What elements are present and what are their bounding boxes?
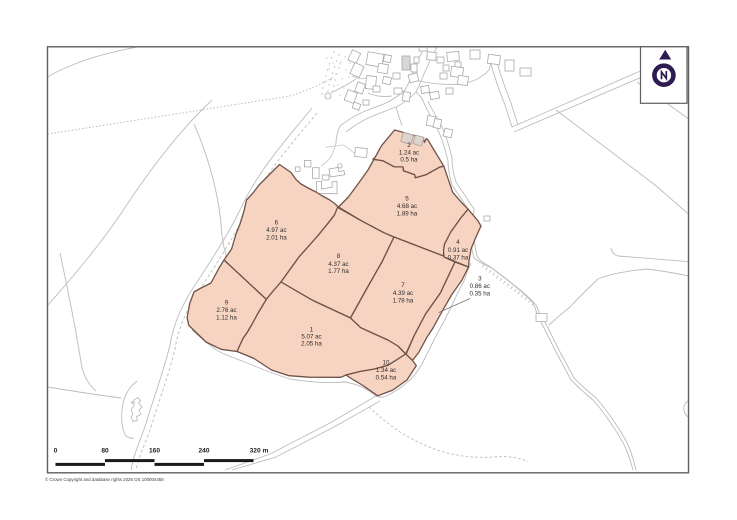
svg-text:1.34 ac: 1.34 ac	[376, 367, 396, 374]
svg-text:320 m: 320 m	[250, 448, 269, 455]
svg-text:0.86 ac: 0.86 ac	[470, 283, 490, 290]
svg-text:0.35 ha: 0.35 ha	[469, 290, 490, 297]
svg-text:8: 8	[337, 253, 341, 260]
svg-text:5.07 ac: 5.07 ac	[301, 334, 321, 341]
svg-text:1.78 ha: 1.78 ha	[393, 297, 414, 304]
svg-text:2.01 ha: 2.01 ha	[266, 235, 287, 242]
svg-text:2.76 ac: 2.76 ac	[216, 307, 236, 314]
svg-text:0.5 ha: 0.5 ha	[400, 156, 418, 163]
svg-text:4.39 ac: 4.39 ac	[393, 290, 413, 297]
svg-text:5: 5	[405, 196, 409, 203]
svg-text:© Crown Copyright and database: © Crown Copyright and database rights 20…	[45, 477, 164, 482]
svg-text:4: 4	[456, 239, 460, 246]
svg-text:3: 3	[478, 276, 482, 283]
svg-text:10: 10	[383, 360, 390, 367]
svg-text:1: 1	[310, 327, 314, 334]
svg-text:160: 160	[149, 448, 160, 455]
svg-text:0.91 ac: 0.91 ac	[448, 247, 468, 254]
svg-text:240: 240	[198, 448, 209, 455]
svg-text:0: 0	[54, 448, 58, 455]
svg-text:2: 2	[407, 142, 411, 149]
svg-text:1.12 ha: 1.12 ha	[216, 314, 237, 321]
svg-text:1.89 ha: 1.89 ha	[397, 211, 418, 218]
svg-text:1.77 ha: 1.77 ha	[328, 268, 349, 275]
svg-text:80: 80	[101, 448, 109, 455]
svg-text:6: 6	[275, 220, 279, 227]
svg-text:4.37 ac: 4.37 ac	[328, 261, 348, 268]
svg-text:7: 7	[401, 282, 405, 289]
svg-text:4.97 ac: 4.97 ac	[266, 227, 286, 234]
svg-text:2.05 ha: 2.05 ha	[301, 341, 322, 348]
svg-text:0.54 ha: 0.54 ha	[376, 375, 397, 382]
svg-text:0.37 ha: 0.37 ha	[448, 255, 469, 262]
svg-text:4.68 ac: 4.68 ac	[397, 203, 417, 210]
svg-text:9: 9	[225, 299, 229, 306]
